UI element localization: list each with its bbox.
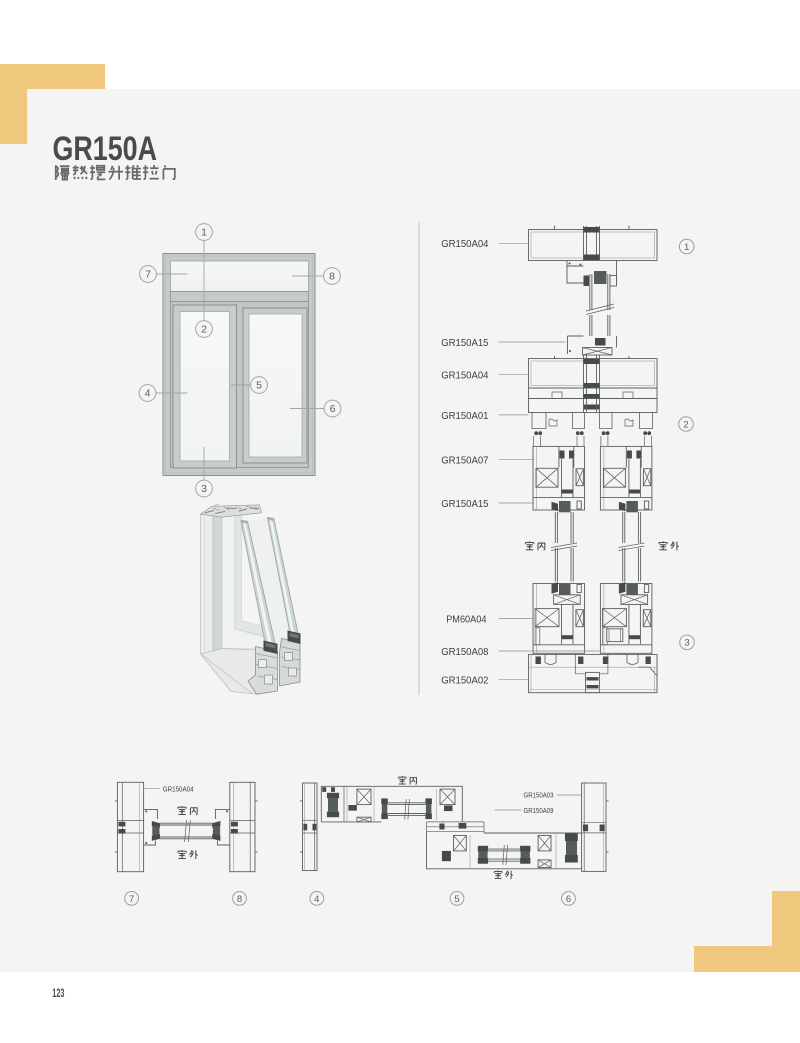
svg-text:3: 3 [684,638,689,649]
svg-text:4: 4 [145,388,151,400]
svg-text:1: 1 [684,242,689,253]
svg-text:GR150A04: GR150A04 [163,784,194,793]
svg-text:8: 8 [237,894,242,905]
svg-text:4: 4 [314,894,319,905]
svg-text:GR150A07: GR150A07 [441,454,488,466]
svg-text:GR150A03: GR150A03 [524,791,554,800]
svg-text:GR150A08: GR150A08 [441,646,488,658]
svg-text:7: 7 [145,269,151,281]
svg-text:3: 3 [201,483,207,495]
svg-text:PM60A04: PM60A04 [446,614,486,626]
svg-text:GR150A15: GR150A15 [441,337,488,349]
svg-text:GR150A04: GR150A04 [441,369,488,381]
svg-text:6: 6 [330,403,336,415]
svg-text:1: 1 [201,227,207,239]
svg-text:GR150A02: GR150A02 [441,675,488,687]
svg-text:2: 2 [683,419,688,430]
svg-text:GR150A15: GR150A15 [441,498,488,510]
svg-text:8: 8 [329,271,335,283]
svg-text:GR150A09: GR150A09 [524,806,554,815]
svg-text:2: 2 [201,324,207,336]
svg-text:GR150A: GR150A [53,130,157,168]
svg-text:GR150A01: GR150A01 [441,410,488,422]
svg-text:5: 5 [454,894,459,905]
svg-text:6: 6 [566,894,571,905]
svg-text:5: 5 [256,380,262,392]
svg-text:GR150A04: GR150A04 [441,238,488,250]
svg-text:7: 7 [129,894,134,905]
svg-text:123: 123 [52,987,64,1000]
